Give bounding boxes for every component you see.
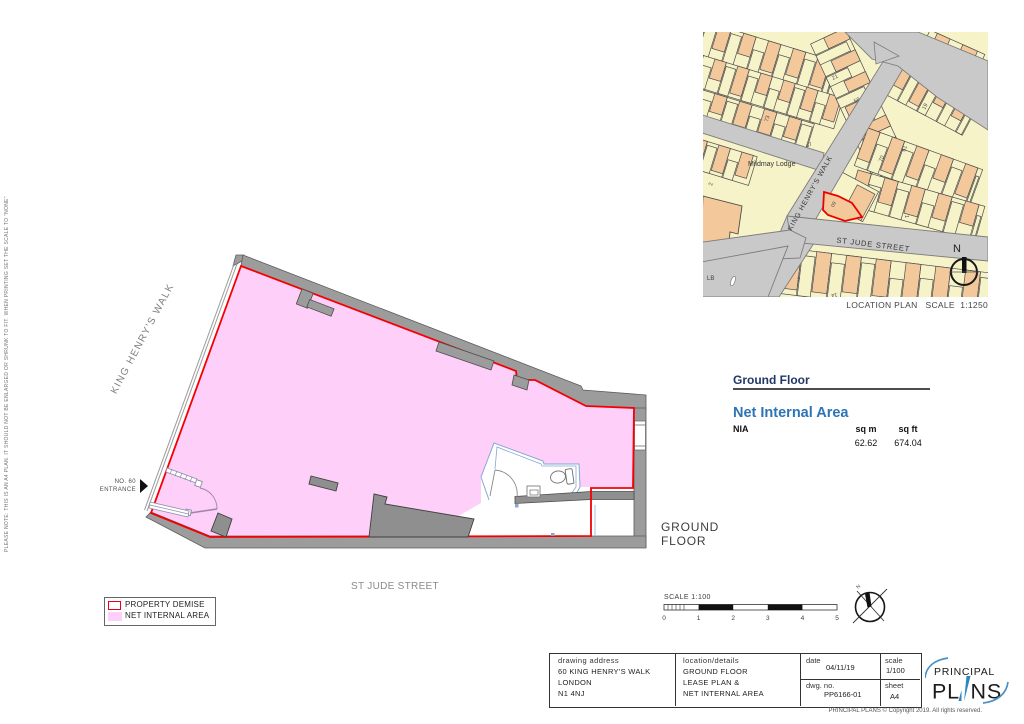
svg-text:0: 0 xyxy=(662,615,666,622)
svg-text:NS: NS xyxy=(971,680,1002,704)
svg-text:1: 1 xyxy=(697,615,701,622)
svg-text:NO. 60: NO. 60 xyxy=(115,479,137,485)
svg-text:KING HENRY'S WALK: KING HENRY'S WALK xyxy=(109,282,177,396)
svg-text:PL: PL xyxy=(932,680,960,704)
svg-text:2: 2 xyxy=(731,615,735,622)
svg-text:5: 5 xyxy=(835,615,839,622)
svg-text:SCALE 1:100: SCALE 1:100 xyxy=(664,594,711,601)
svg-text:3: 3 xyxy=(766,615,770,622)
svg-text:ENTRANCE: ENTRANCE xyxy=(100,487,136,493)
svg-text:PRINCIPAL: PRINCIPAL xyxy=(934,666,995,678)
svg-text:4: 4 xyxy=(801,615,805,622)
svg-text:N: N xyxy=(855,583,862,590)
